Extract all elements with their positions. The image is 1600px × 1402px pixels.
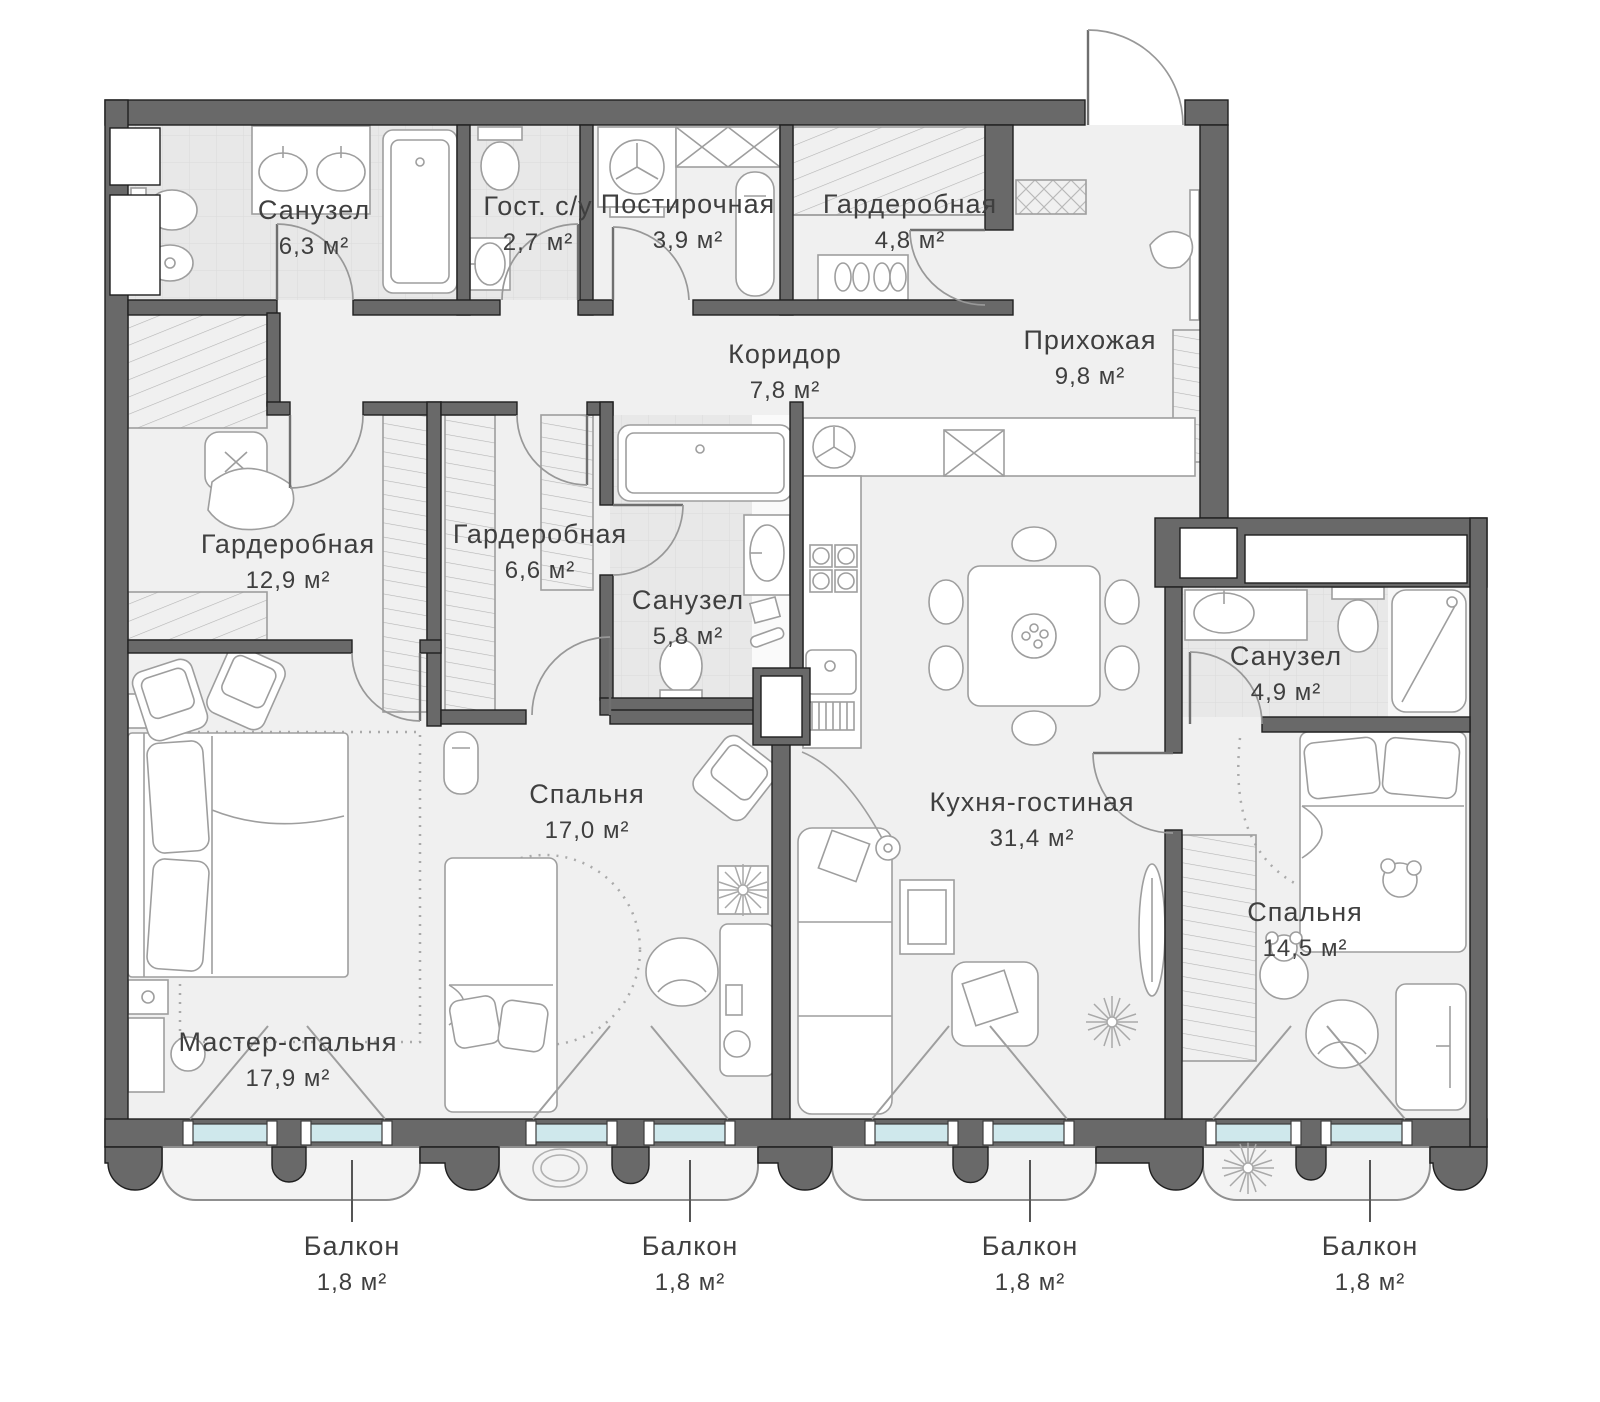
- floor-plan-page: Санузел6,3 м² Гост. с/у2,7 м² Постирочна…: [0, 0, 1600, 1402]
- floor-plan-canvas: [0, 0, 1600, 1402]
